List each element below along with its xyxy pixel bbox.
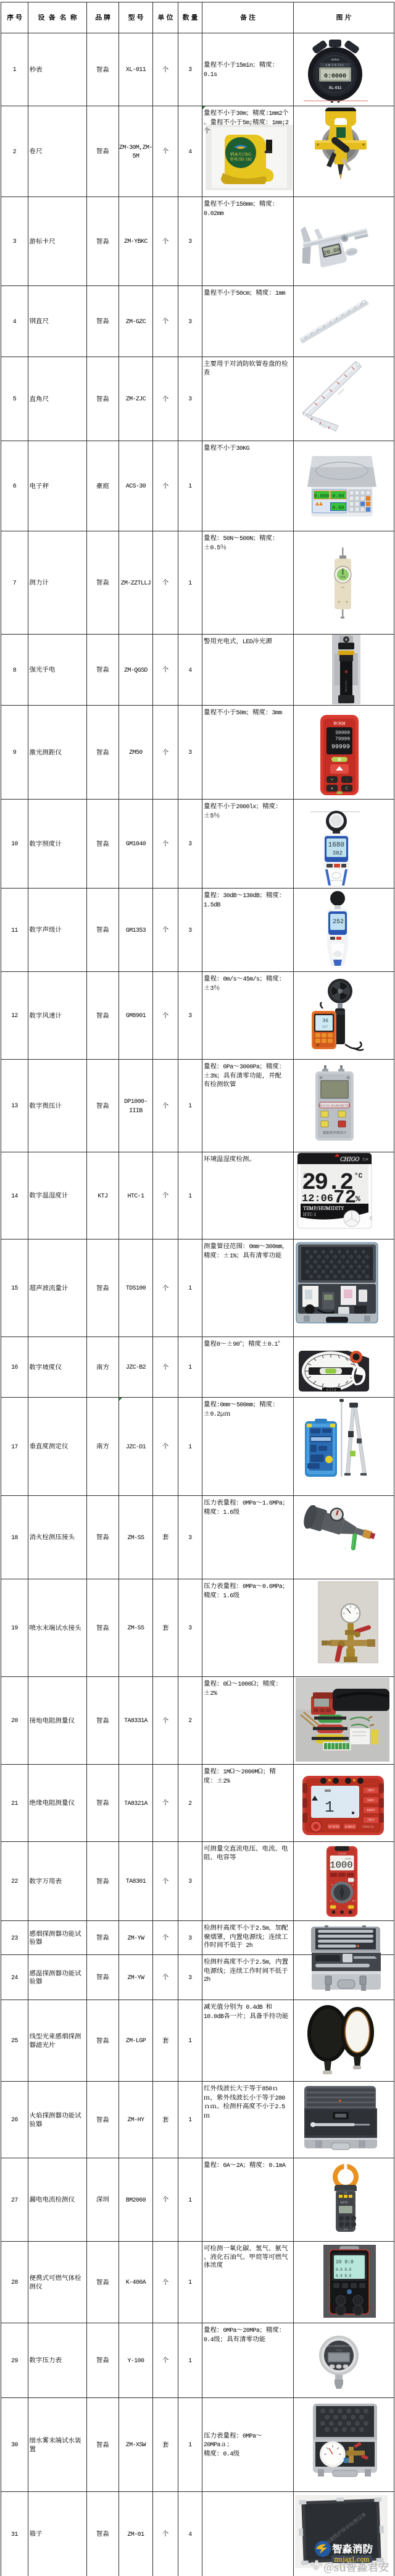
svg-text:NK: NK — [341, 586, 345, 589]
svg-text:HTC-1: HTC-1 — [303, 1212, 316, 1218]
svg-text:V: V — [331, 1884, 333, 1887]
svg-text:TA8301: TA8301 — [338, 1852, 346, 1856]
svg-text:0.00: 0.00 — [332, 505, 344, 511]
svg-text:750V: 750V — [367, 1818, 375, 1822]
svg-text:1: 1 — [325, 1798, 335, 1817]
svg-text:AUTO: AUTO — [340, 2201, 349, 2205]
svg-text:CE: CE — [344, 2191, 347, 2195]
svg-text:252: 252 — [333, 919, 344, 926]
svg-text:RANGE: RANGE — [344, 1825, 355, 1829]
svg-text:@su智淼君安: @su智淼君安 — [324, 2559, 389, 2575]
svg-text:0:0000: 0:0000 — [324, 74, 346, 80]
svg-text:Ω: Ω — [330, 1900, 332, 1903]
svg-text:8.8 8.8: 8.8 8.8 — [336, 2268, 352, 2272]
svg-text:DIGITAL MANOMETER: DIGITAL MANOMETER — [318, 1104, 351, 1108]
svg-text:0.000: 0.000 — [314, 494, 329, 499]
svg-text:SMTWTFS: SMTWTFS — [326, 64, 344, 67]
svg-text:AUTO: AUTO — [344, 1857, 351, 1860]
svg-text:36: 36 — [322, 1018, 328, 1024]
svg-text:B X V B: B X V B — [326, 1388, 336, 1392]
svg-text:302: 302 — [333, 850, 343, 856]
svg-text:39999: 39999 — [335, 730, 350, 736]
svg-text:C: C — [370, 1215, 372, 1221]
svg-text:XL-011: XL-011 — [329, 86, 342, 90]
svg-text:+: + — [331, 777, 333, 782]
svg-text:79999: 79999 — [335, 737, 350, 742]
svg-text:智淼消防: 智淼消防 — [332, 2541, 373, 2556]
svg-text:20 8:8: 20 8:8 — [336, 2260, 354, 2265]
svg-text:志高: 志高 — [362, 1157, 368, 1162]
svg-text:DIGITAL PRESSURE GAUGE: DIGITAL PRESSURE GAUGE — [323, 2345, 354, 2348]
svg-text:8.8 8.8: 8.8 8.8 — [336, 2274, 352, 2278]
svg-text:-: - — [346, 777, 347, 782]
svg-text:%: % — [355, 1194, 360, 1204]
svg-text:Hz: Hz — [352, 1900, 355, 1903]
svg-text:mA: mA — [343, 2228, 348, 2231]
svg-text:500N: 500N — [340, 576, 346, 579]
svg-text:Digital Lux Meter: Digital Lux Meter — [328, 879, 344, 882]
svg-text:TA8321A: TA8321A — [362, 1825, 374, 1829]
svg-text:ZM-QGSD: ZM-QGSD — [344, 680, 348, 692]
svg-text:A: A — [352, 1884, 354, 1887]
svg-text:Y-100: Y-100 — [336, 2349, 342, 2352]
svg-text:NORM: NORM — [333, 720, 346, 726]
svg-text:1680: 1680 — [328, 842, 344, 849]
svg-text:C: C — [346, 785, 348, 791]
svg-text:1000V: 1000V — [367, 1808, 376, 1812]
svg-text:117: 117 — [322, 1025, 328, 1029]
svg-text:xinloo: xinloo — [331, 58, 339, 62]
svg-text:1000: 1000 — [330, 1860, 352, 1871]
svg-text:智能数字微压计: 智能数字微压计 — [323, 1130, 347, 1135]
svg-text:POWER: POWER — [328, 1825, 339, 1829]
svg-text:°C: °C — [354, 1173, 363, 1180]
svg-text:0.00: 0.00 — [332, 494, 344, 499]
svg-text:500V: 500V — [367, 1798, 375, 1802]
svg-text:TEMP/HUMIDITY: TEMP/HUMIDITY — [303, 1205, 344, 1212]
svg-text:250V: 250V — [367, 1788, 375, 1793]
svg-text:CHIGO: CHIGO — [339, 1155, 359, 1163]
svg-text:12:06: 12:06 — [302, 1193, 333, 1205]
svg-text:99999: 99999 — [331, 744, 350, 751]
svg-text:AM: AM — [303, 1172, 309, 1176]
